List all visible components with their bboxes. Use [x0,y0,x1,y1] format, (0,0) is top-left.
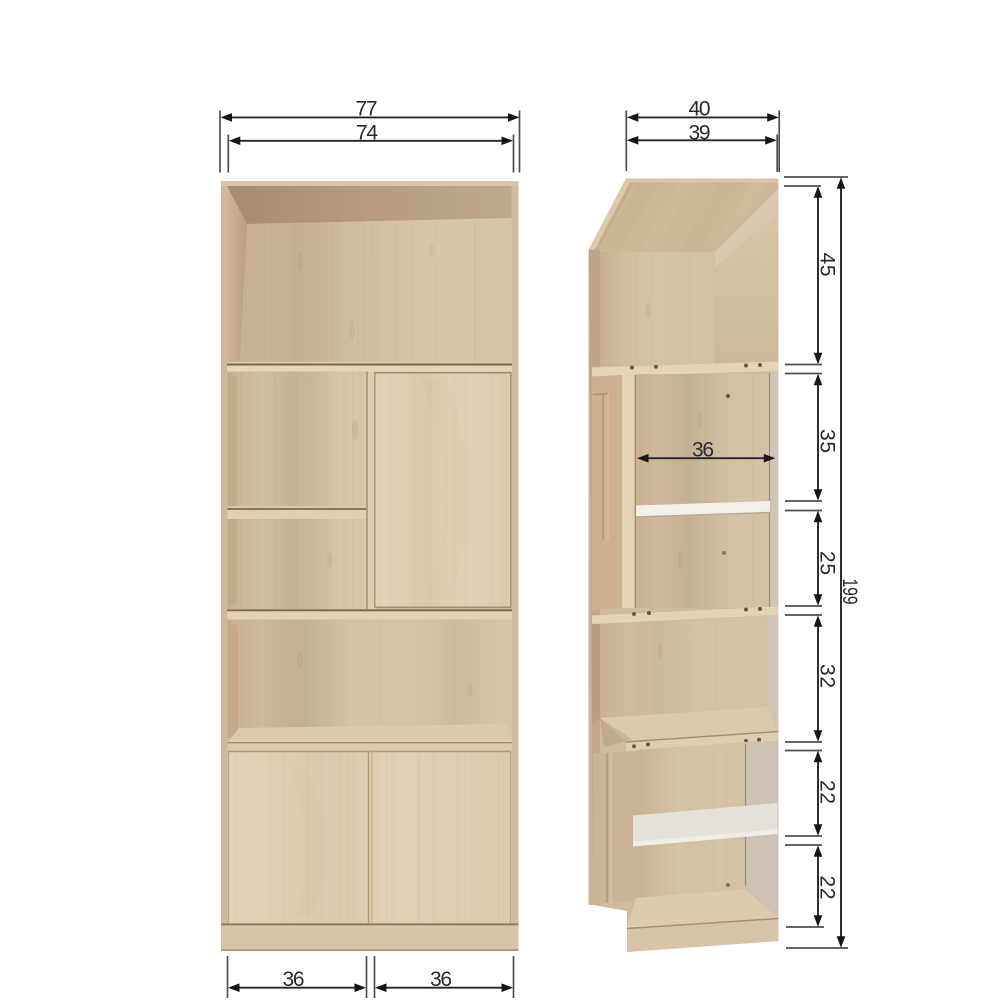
svg-text:45: 45 [816,253,839,277]
svg-text:74: 74 [356,122,378,145]
svg-text:22: 22 [816,876,839,900]
svg-text:32: 32 [816,664,839,688]
svg-text:40: 40 [689,98,711,121]
svg-text:36: 36 [692,439,714,462]
svg-text:22: 22 [816,780,839,804]
svg-text:39: 39 [689,122,711,145]
svg-text:25: 25 [816,551,839,575]
svg-text:199: 199 [838,579,861,605]
svg-text:36: 36 [430,968,452,991]
svg-text:77: 77 [356,98,378,121]
svg-text:35: 35 [816,429,839,453]
svg-text:36: 36 [283,968,305,991]
